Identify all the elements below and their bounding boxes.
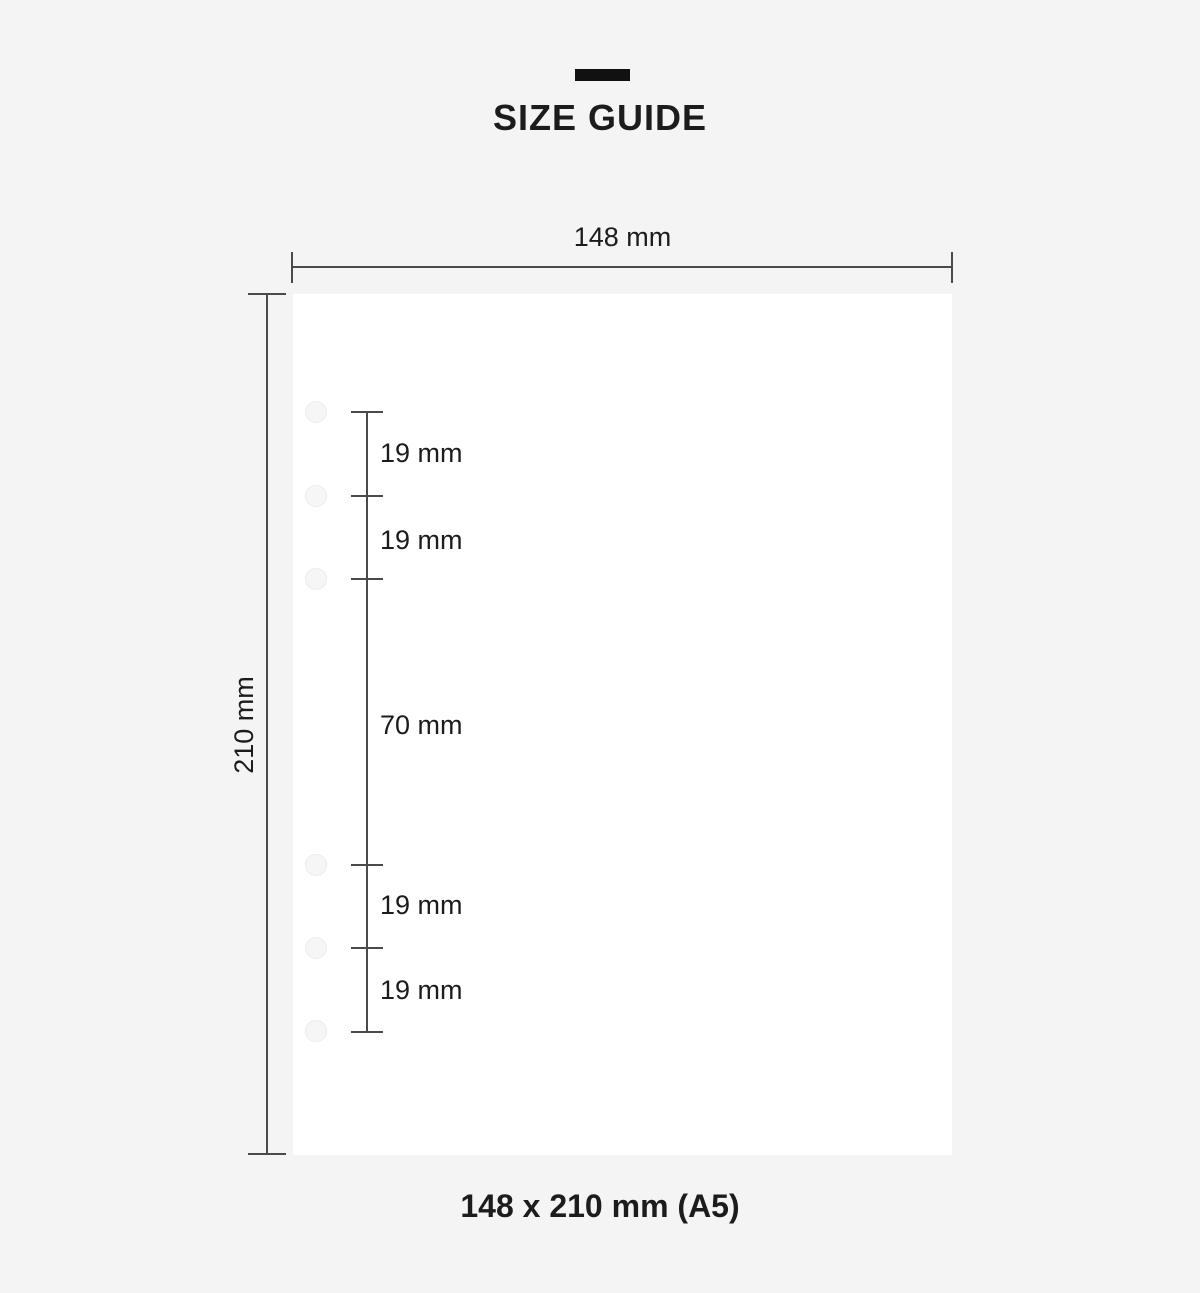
ruler-tick [351, 947, 383, 949]
punch-hole [305, 854, 327, 876]
page-title: SIZE GUIDE [0, 97, 1200, 139]
ruler-tick [351, 1031, 383, 1033]
accent-bar [575, 69, 630, 81]
width-dimension-tick-right [951, 252, 953, 283]
segment-label: 19 mm [380, 436, 463, 470]
punch-hole [305, 1020, 327, 1042]
ruler-tick [351, 864, 383, 866]
punch-hole [305, 401, 327, 423]
ruler-tick [351, 578, 383, 580]
ruler-tick [351, 495, 383, 497]
size-summary-caption: 148 x 210 mm (A5) [0, 1188, 1200, 1225]
height-dimension-tick-bottom [248, 1153, 286, 1155]
width-dimension-line [292, 266, 953, 268]
width-dimension-tick-left [291, 252, 293, 283]
height-dimension-label: 210 mm [229, 625, 259, 825]
segment-label: 70 mm [380, 708, 463, 742]
hole-spacing-ruler-line [366, 412, 368, 1032]
segment-label: 19 mm [380, 523, 463, 557]
height-dimension-tick-top [248, 293, 286, 295]
segment-label: 19 mm [380, 973, 463, 1007]
ruler-tick [351, 411, 383, 413]
width-dimension-label: 148 mm [292, 222, 953, 253]
punch-hole [305, 485, 327, 507]
punch-hole [305, 568, 327, 590]
segment-label: 19 mm [380, 888, 463, 922]
punch-hole [305, 937, 327, 959]
height-dimension-line [266, 294, 268, 1155]
